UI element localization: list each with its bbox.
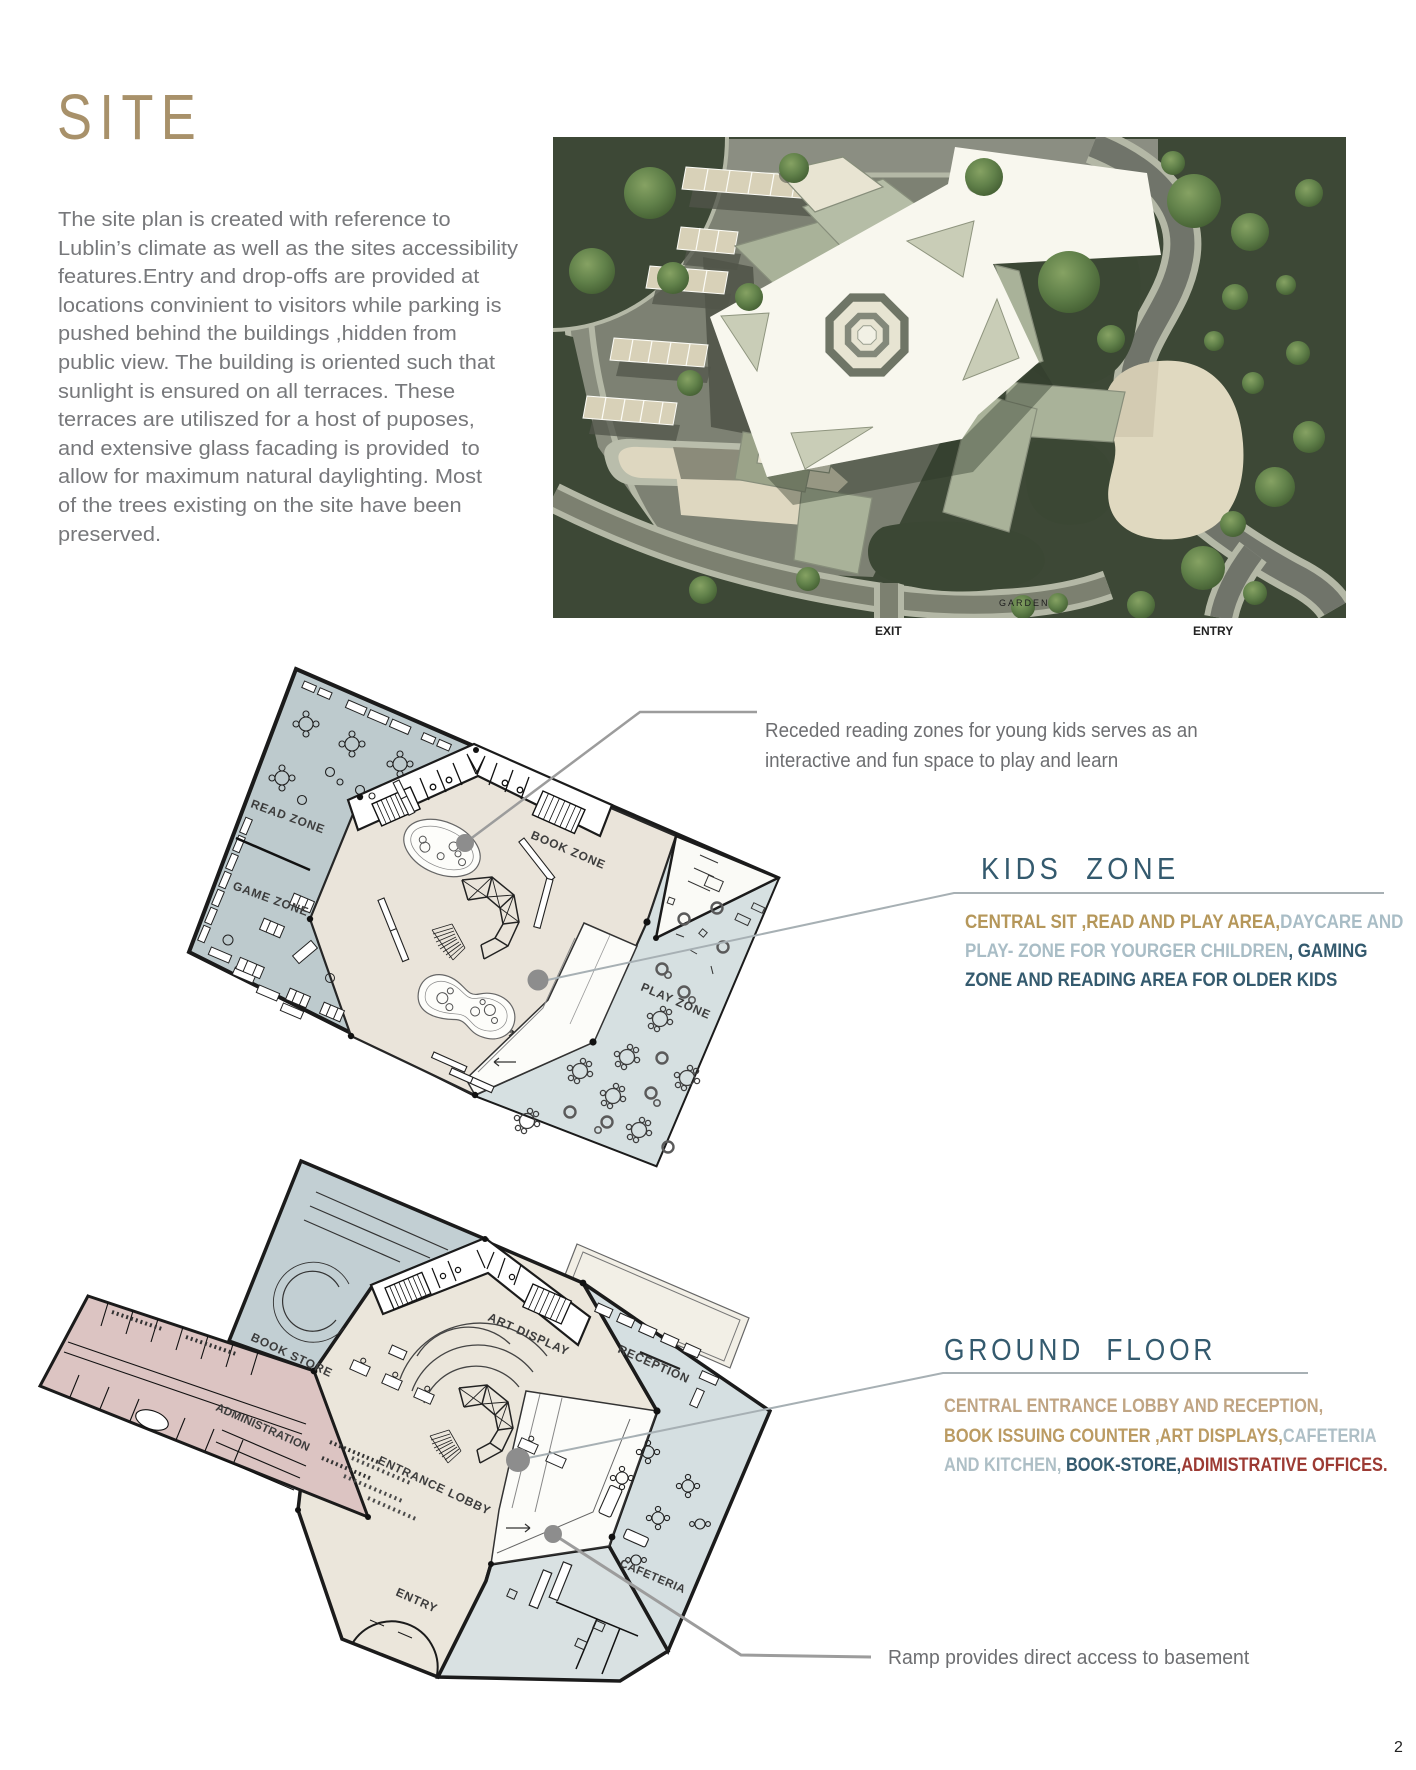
svg-text:GARDEN: GARDEN xyxy=(999,598,1050,608)
